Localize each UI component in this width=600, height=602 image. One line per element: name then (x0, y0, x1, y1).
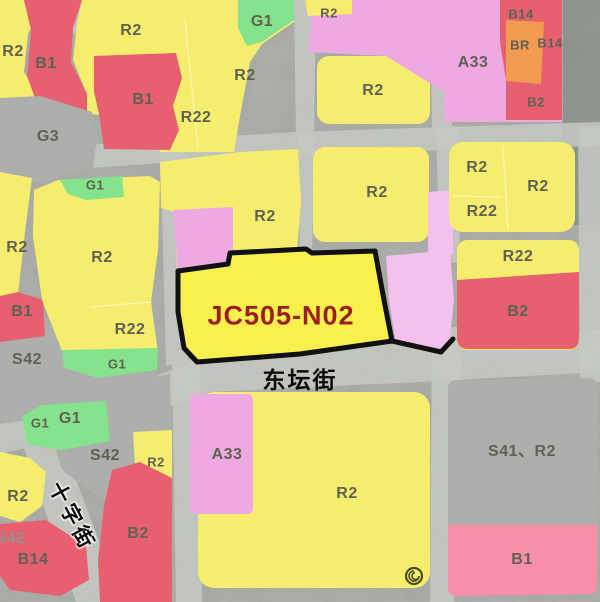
highlight-parcel-code: JC505-N02 (207, 301, 354, 332)
parcel-label-r2: R2 (234, 68, 255, 84)
parcel-label-g1: G1 (251, 14, 273, 30)
parcel-label-a33: A33 (212, 447, 243, 463)
parcel-label-a33: A33 (458, 55, 489, 71)
parcel-label-r2: R2 (336, 486, 357, 502)
parcel-label-r2: R2 (6, 240, 27, 256)
parcel-label-b2: B2 (507, 304, 528, 320)
parcel-label-b1: B1 (11, 304, 32, 320)
parcel-label-g1: G1 (31, 417, 49, 430)
parcel-label-s42: S42 (0, 531, 25, 547)
parcel-label-g1: G1 (86, 179, 104, 192)
parcel-label-r2: R2 (91, 250, 112, 266)
parcel-label-s41-r2: S41、R2 (488, 444, 556, 460)
parcel-label-b14: B14 (18, 552, 49, 568)
parcel-label-r2: R2 (2, 44, 23, 60)
parcel-label-r2: R2 (362, 83, 383, 99)
parcel-label-b1: B1 (132, 92, 153, 108)
parcel-label-b2: B2 (127, 526, 148, 542)
parcel-label-b1: B1 (511, 552, 532, 568)
parcel-pink-right-of-highlight (386, 250, 454, 348)
parcel-label-g1: G1 (108, 358, 126, 371)
parcel-label-r2: R2 (7, 489, 28, 505)
parcel-label-b14: B14 (508, 8, 533, 21)
parcel-label-r2: R2 (366, 185, 387, 201)
parcel-label-g3: G3 (37, 129, 59, 145)
zoning-map: R2 B1 R2 G1 R2 B1 R22 G3 R2 A33 B14 BR B… (0, 0, 600, 602)
parcel-label-r2: R2 (466, 160, 487, 176)
parcel-label-b2: B2 (527, 96, 545, 109)
parcel-label-r2: R2 (120, 23, 141, 39)
parcel-label-g1: G1 (59, 411, 81, 427)
parcel-label-s42: S42 (90, 448, 120, 464)
parcel-label-r2: R2 (147, 456, 165, 469)
street-name-dongtan: 东坛街 (263, 361, 338, 395)
parcel-label-br: BR (510, 39, 530, 52)
parcel-label-r22: R22 (181, 110, 212, 126)
parcel-label-r22: R22 (467, 204, 498, 220)
parcel-label-r2: R2 (320, 7, 338, 20)
parcel-label-r22: R22 (115, 322, 146, 338)
parcel-label-s42: S42 (12, 352, 42, 368)
parcel-label-b14: B14 (537, 37, 562, 50)
parcel-label-r2: R2 (254, 209, 275, 225)
parcel-label-r2: R2 (527, 179, 548, 195)
parcel-label-b1: B1 (35, 56, 56, 72)
parcel-label-r22: R22 (503, 249, 534, 265)
